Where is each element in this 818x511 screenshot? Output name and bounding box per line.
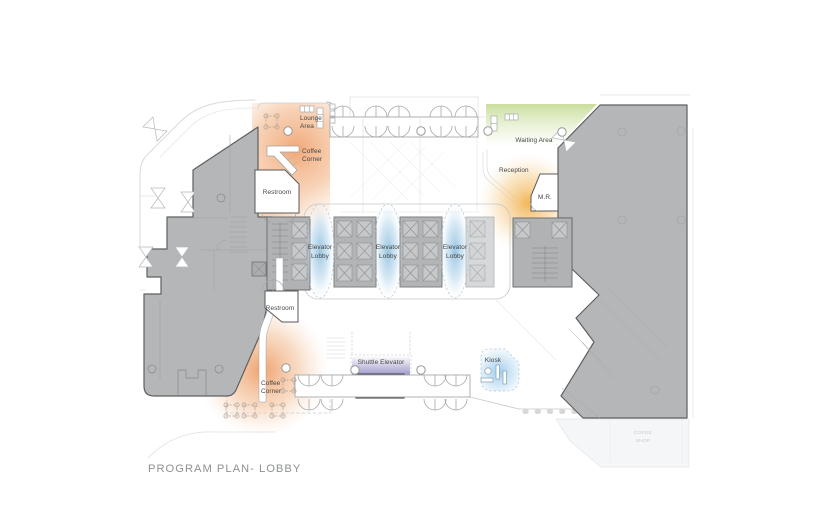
program-plan-lobby-drawing: Lounge Area Coffee Corner Restroom Restr… bbox=[0, 0, 818, 511]
meeting-room-label: M.R. bbox=[538, 194, 552, 201]
elevator-bank-1 bbox=[334, 217, 376, 287]
elevator-lobby-ellipses bbox=[306, 204, 469, 298]
elevator-lobby-3-ellipse bbox=[441, 204, 469, 298]
shuttle-elevator-label: Shuttle Elevator bbox=[358, 359, 405, 366]
elevator-lobby-2-ellipse bbox=[374, 204, 402, 298]
elevator-lobby-2-label-line2: Lobby bbox=[379, 253, 398, 260]
elevator-lobby-3-label-line1: Elevator bbox=[443, 244, 468, 251]
lounge-area-label-line2: Area bbox=[300, 123, 314, 130]
coffee-corner-upper-label-line2: Corner bbox=[302, 156, 323, 163]
elevator-lobby-1-ellipse bbox=[306, 204, 334, 298]
drawing-title: PROGRAM PLAN- LOBBY bbox=[148, 463, 301, 475]
elevator-lobby-2-label-line1: Elevator bbox=[376, 244, 401, 251]
coffee-shop-label-line2: SHOP bbox=[636, 438, 651, 444]
coffee-corner-lower-label-line2: Corner bbox=[261, 388, 282, 395]
kiosk-label: Kiosk bbox=[485, 357, 502, 364]
restroom-upper-label: Restroom bbox=[263, 189, 292, 196]
right-building-mass bbox=[558, 105, 687, 418]
coffee-corner-upper-label-line1: Coffee bbox=[302, 148, 322, 155]
elevator-lobby-1-label-line1: Elevator bbox=[308, 244, 333, 251]
elevator-bank-2 bbox=[400, 217, 442, 287]
waiting-area-label: Waiting Area bbox=[515, 137, 553, 144]
restroom-lower-label: Restroom bbox=[266, 305, 295, 312]
lounge-area-label-line1: Lounge bbox=[300, 115, 322, 122]
elevator-bank-3 bbox=[466, 217, 494, 287]
elevator-lobby-1-label-line2: Lobby bbox=[311, 253, 330, 260]
north-entrance-band bbox=[330, 117, 478, 137]
right-service-core bbox=[513, 218, 572, 287]
coffee-corner-lower-label-line1: Coffee bbox=[261, 380, 281, 387]
reception-label: Reception bbox=[499, 167, 529, 174]
elevator-lobby-3-label-line2: Lobby bbox=[446, 253, 465, 260]
floor-plan-svg: Lounge Area Coffee Corner Restroom Restr… bbox=[0, 0, 818, 511]
coffee-shop-label-line1: COFEE bbox=[634, 430, 652, 436]
